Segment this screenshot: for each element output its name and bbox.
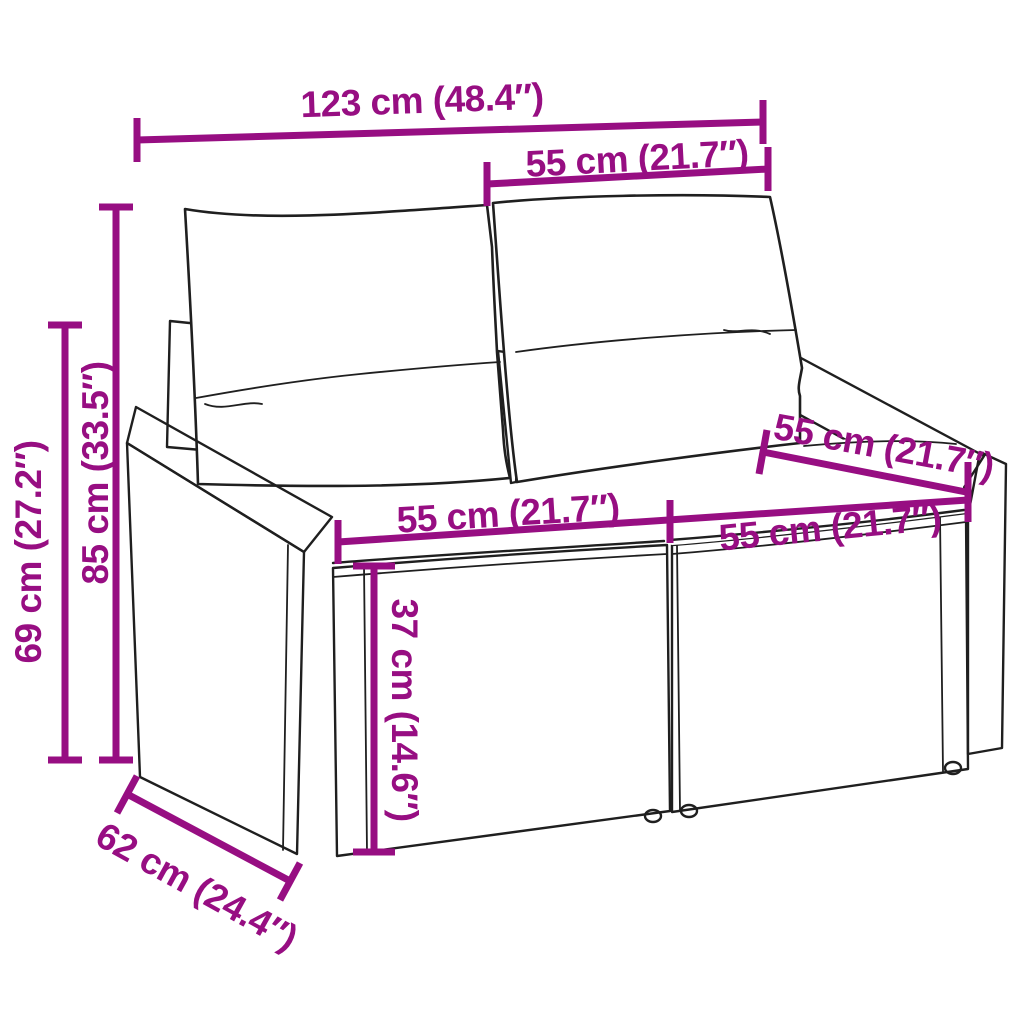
base-front-left <box>333 545 670 856</box>
product-dimension-diagram: 123 cm (48.4″) 55 cm (21.7″) 85 cm (33.5… <box>0 0 1024 1024</box>
dim-overall-depth: 62 cm (24.4″) <box>89 776 304 958</box>
dim-overall-depth-label: 62 cm (24.4″) <box>89 814 304 958</box>
dim-overall-width-label: 123 cm (48.4″) <box>300 76 544 125</box>
dim-overall-height-label: 85 cm (33.5″) <box>75 361 116 584</box>
base-module-seam <box>364 516 943 852</box>
dim-seat-height-label: 37 cm (14.6″) <box>384 598 425 821</box>
sofa-dimension-illustration: 123 cm (48.4″) 55 cm (21.7″) 85 cm (33.5… <box>0 0 1024 1024</box>
dim-overall-height: 85 cm (33.5″) <box>75 207 133 760</box>
left-arm-corner-line <box>283 545 288 850</box>
base-front-right <box>672 513 968 812</box>
dim-armrest-height-label: 69 cm (27.2″) <box>8 440 49 663</box>
right-arm-side-panel <box>968 452 1006 754</box>
back-cushion-left <box>185 205 510 486</box>
dim-armrest-height: 69 cm (27.2″) <box>8 325 82 760</box>
left-arm-front-panel <box>127 443 304 854</box>
dim-backrest-cushion-width-label: 55 cm (21.7″) <box>525 132 750 185</box>
